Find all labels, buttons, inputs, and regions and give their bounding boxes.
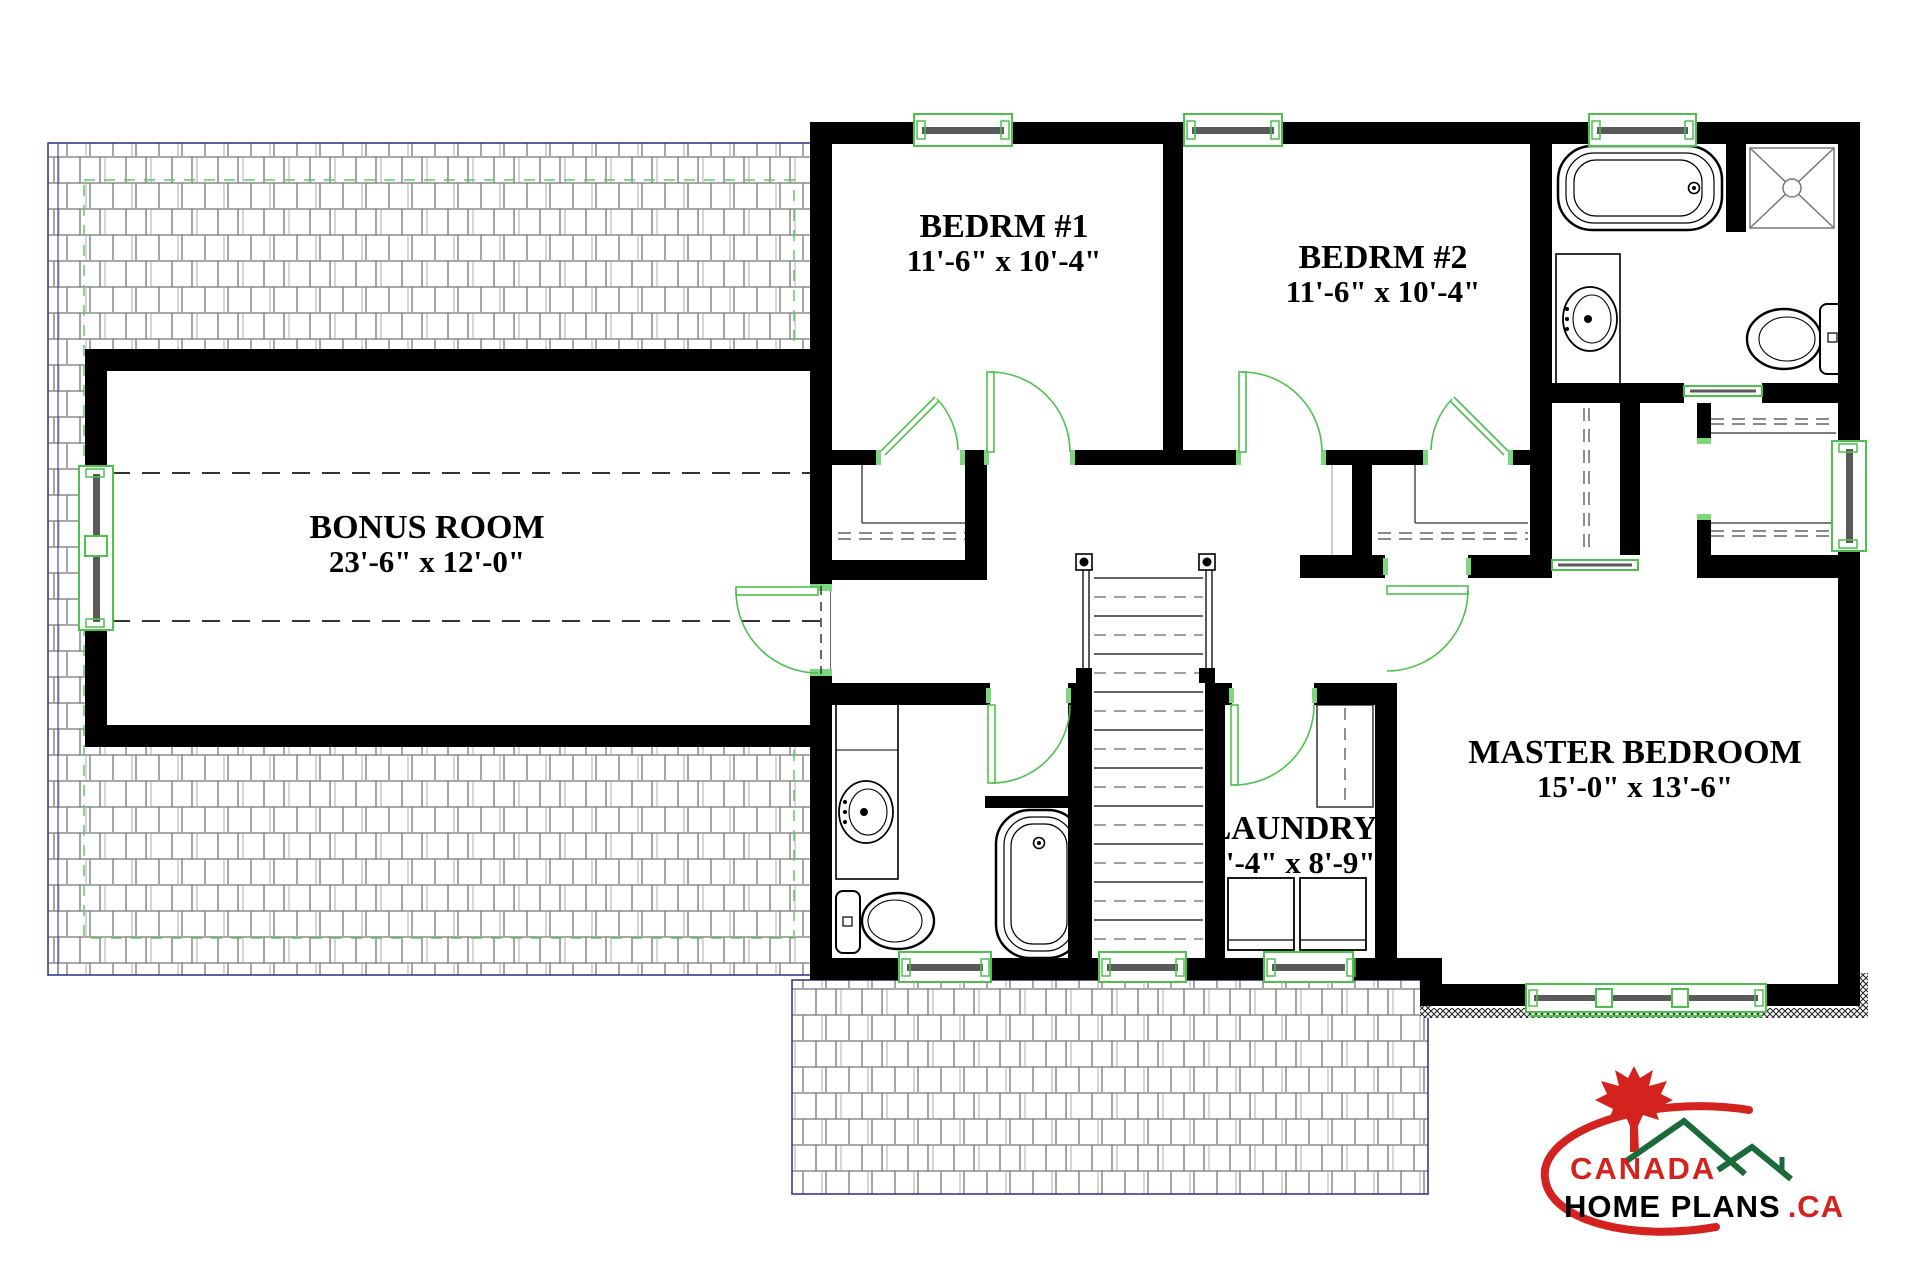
toilet-bath [836, 891, 934, 953]
window-walkin [1832, 441, 1866, 551]
label-bonus-room: BONUS ROOM 23'-6" x 12'-0" [309, 510, 544, 579]
room-name: MASTER BEDROOM [1468, 735, 1801, 771]
dryer [1300, 878, 1366, 950]
room-name: BEDRM #2 [1286, 240, 1481, 276]
shower [1750, 148, 1834, 228]
door-bath [988, 705, 1070, 783]
label-bedrm2: BEDRM #2 11'-6" x 10'-4" [1286, 240, 1481, 309]
room-name: LAUNDRY [1209, 811, 1378, 847]
logo-brand-line2: HOME PLANS.CA [1564, 1189, 1844, 1225]
room-dims: 15'-0" x 13'-6" [1468, 771, 1801, 804]
room-dims: 11'-6" x 10'-4" [907, 245, 1102, 278]
logo-home-plans: HOME PLANS [1564, 1189, 1781, 1224]
room-name: BEDRM #1 [907, 209, 1102, 245]
stair-railing [1076, 554, 1215, 683]
window-master-triple [1526, 984, 1766, 1016]
door-bedrm2 [1239, 372, 1322, 452]
logo-suffix: .CA [1788, 1189, 1844, 1224]
door-closet-bedrm1 [881, 397, 958, 455]
room-name: BONUS ROOM [309, 510, 544, 546]
label-laundry: LAUNDRY 5'-4" x 8'-9" [1209, 811, 1378, 880]
washer [1228, 878, 1294, 950]
door-master [1387, 586, 1468, 671]
room-dims: 11'-6" x 10'-4" [1286, 276, 1481, 309]
door-linen [1552, 560, 1638, 570]
room-dims: 23'-6" x 12'-0" [309, 546, 544, 579]
linen-closet-rod [1584, 408, 1589, 552]
room-dims: 5'-4" x 8'-9" [1209, 847, 1378, 880]
window-bedrm2 [1184, 114, 1282, 146]
label-bedrm1: BEDRM #1 11'-6" x 10'-4" [907, 209, 1102, 278]
window-bath [899, 952, 991, 982]
sink-vanity-bath [836, 693, 898, 879]
door-pocket-ensuite [1684, 386, 1762, 396]
stairs [1094, 578, 1203, 939]
bathtub-ensuite [1558, 146, 1722, 230]
door-closet-bedrm2 [1431, 397, 1508, 455]
closet-shelf-bedrm1 [838, 465, 965, 539]
walkin-closet-rods [1711, 419, 1836, 536]
window-bonus [79, 466, 113, 630]
toilet-ensuite [1747, 304, 1844, 374]
floor-plan: BONUS ROOM 23'-6" x 12'-0" BEDRM #1 11'-… [0, 0, 1920, 1280]
logo-brand-line1: CANADA [1570, 1151, 1716, 1187]
linen-cabinet-laundry [1317, 705, 1373, 807]
window-bedrm1 [914, 114, 1012, 146]
roof-hatch-bottom [792, 980, 1428, 1194]
label-master-bedroom: MASTER BEDROOM 15'-0" x 13'-6" [1468, 735, 1801, 804]
window-stairhall [1099, 952, 1186, 982]
sink-vanity-ensuite [1556, 254, 1620, 384]
door-bedrm1 [987, 372, 1070, 452]
floor-plan-drawing [0, 0, 1920, 1280]
door-laundry [1231, 705, 1314, 785]
window-laundry [1264, 952, 1355, 982]
window-ensuite [1589, 114, 1696, 146]
